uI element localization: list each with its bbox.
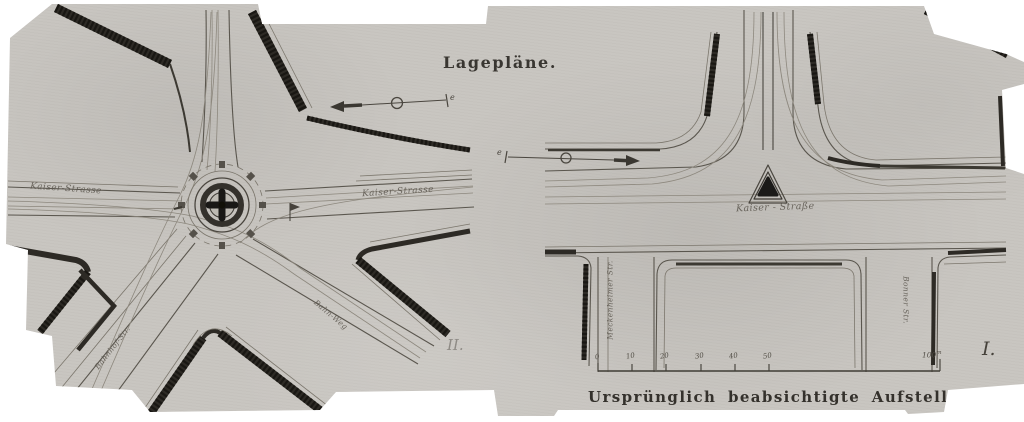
left-axis-symbol — [330, 94, 448, 112]
monument-plaza-circle — [174, 161, 300, 249]
scale-tick-30: 30 — [694, 351, 704, 360]
scale-end-unit: m — [936, 350, 941, 356]
scale-tick-40: 40 — [728, 351, 738, 360]
right-plan — [505, 10, 1008, 372]
figure-title: Lagepläne. — [443, 53, 557, 72]
left-plan-numeral: II. — [447, 336, 464, 354]
scale-tick-10: 10 — [625, 351, 635, 360]
right-plan-numeral: I. — [982, 338, 996, 360]
figure-caption: Ursprünglich beabsichtigte Aufstellung. — [588, 388, 991, 406]
scale-tick-20: 20 — [659, 351, 669, 360]
right-axis-symbol — [505, 151, 640, 166]
right-axis-letter: e — [497, 148, 502, 157]
left-axis-letter: e — [450, 93, 455, 102]
street-label-east-vertical: Bonner Str. — [902, 276, 911, 324]
scale-end-value: 100 — [922, 351, 936, 360]
scale-bar — [598, 359, 940, 371]
left-plan — [8, 8, 474, 420]
scale-end-label: 100m — [922, 350, 942, 360]
street-label-west-vertical: Meckenheimer Str. — [606, 260, 615, 339]
scanned-figure: Lagepläne. Ursprünglich beabsichtigte Au… — [0, 0, 1024, 422]
paper-sheet: Lagepläne. Ursprünglich beabsichtigte Au… — [0, 0, 1024, 422]
monument-triangle-symbol — [749, 165, 787, 203]
scale-tick-50: 50 — [762, 351, 772, 360]
